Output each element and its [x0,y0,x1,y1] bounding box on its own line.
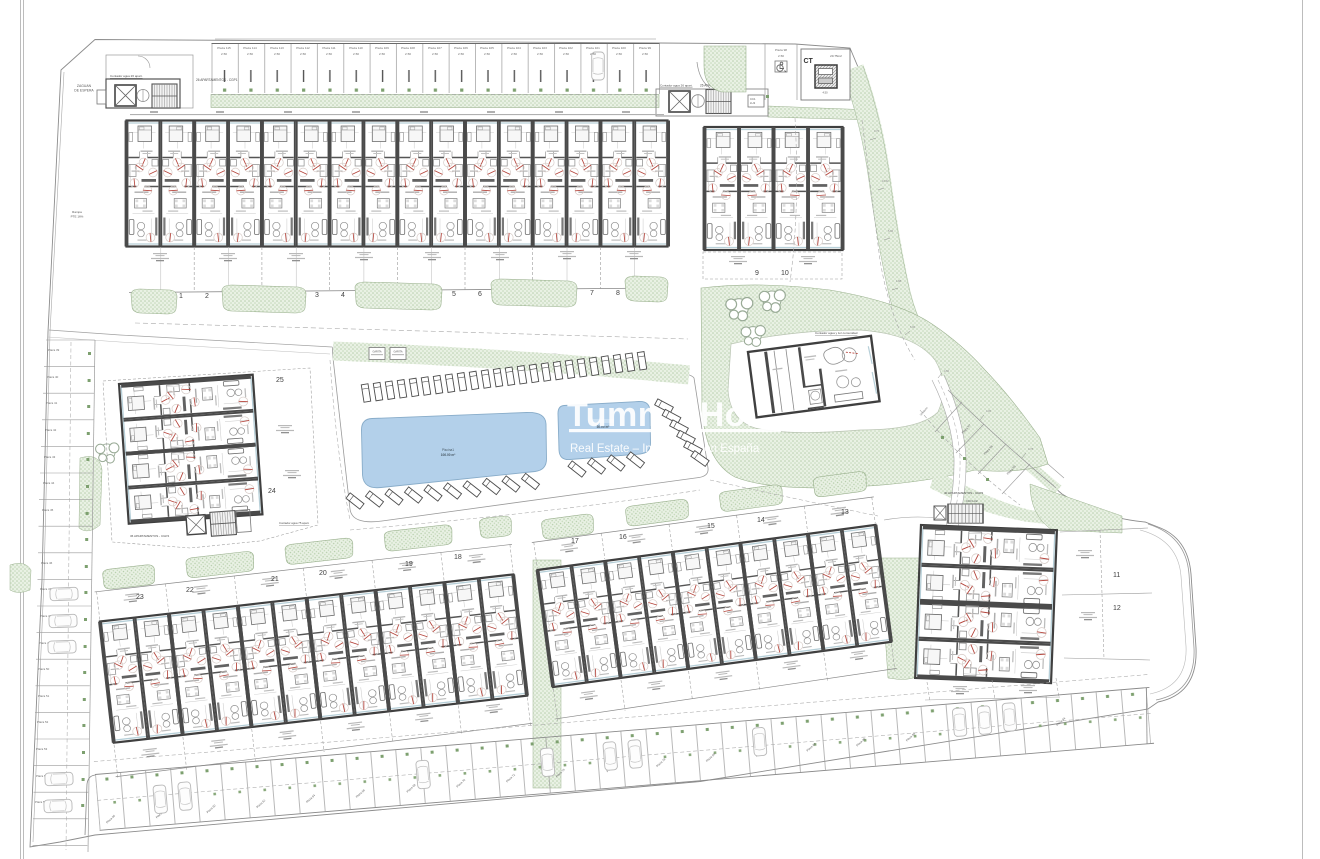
svg-text:7: 7 [590,290,594,297]
svg-text:2.50: 2.50 [221,52,227,56]
svg-text:Plaza 103: Plaza 103 [533,46,547,50]
svg-text:5.06: 5.06 [910,325,916,329]
svg-text:Plaza 109: Plaza 109 [375,46,389,50]
svg-text:4.50: 4.50 [944,369,950,373]
svg-text:2.50: 2.50 [458,52,464,56]
svg-text:Plaza 100: Plaza 100 [612,46,626,50]
svg-text:2.50: 2.50 [353,52,359,56]
svg-text:CT: CT [804,58,814,65]
svg-text:3.76: 3.76 [874,129,880,133]
svg-text:36 APARTAMENTOS - CGP4: 36 APARTAMENTOS - CGP4 [130,534,169,538]
svg-text:Plaza 104: Plaza 104 [507,46,521,50]
svg-text:2.50: 2.50 [642,52,648,56]
svg-text:2.50: 2.50 [432,52,438,56]
svg-text:26 APARTAMENTOS - CGP1: 26 APARTAMENTOS - CGP1 [196,78,238,82]
svg-text:Plaza 108: Plaza 108 [401,46,415,50]
svg-text:2.50: 2.50 [326,52,332,56]
svg-text:Rampa: Rampa [72,210,82,214]
svg-text:2.50: 2.50 [590,52,596,56]
svg-text:PTE 16%: PTE 16% [71,215,84,219]
svg-text:16: 16 [619,534,627,541]
svg-text:Contador agua y luz comunidad: Contador agua y luz comunidad [815,331,858,335]
svg-text:15: 15 [707,523,715,530]
svg-text:Piscina1: Piscina1 [442,448,454,452]
svg-text:12: 12 [1113,605,1121,612]
svg-text:CC3 LU2: CC3 LU2 [966,499,978,503]
svg-text:22: 22 [186,587,194,594]
svg-text:Plaza 50: Plaza 50 [38,667,50,671]
svg-text:9: 9 [755,270,759,277]
svg-text:Plaza 111: Plaza 111 [322,46,336,50]
svg-text:2.50: 2.50 [484,52,490,56]
svg-text:106.00 m²: 106.00 m² [441,453,456,457]
svg-text:Plaza 106: Plaza 106 [454,46,468,50]
svg-text:2.50: 2.50 [274,52,280,56]
svg-text:20.75m2: 20.75m2 [830,54,842,58]
svg-text:Contador agua 26 apart.: Contador agua 26 apart. [110,74,143,78]
svg-text:Plaza 98: Plaza 98 [775,48,787,52]
svg-text:11: 11 [1113,572,1120,579]
svg-text:2.50: 2.50 [247,52,253,56]
svg-text:25: 25 [276,377,284,384]
svg-text:Plaza 40: Plaza 40 [47,375,59,379]
svg-text:Plaza 46: Plaza 46 [41,561,53,565]
svg-text:6: 6 [478,291,482,298]
svg-text:GARITA: GARITA [393,351,402,354]
svg-text:Plaza 107: Plaza 107 [428,46,442,50]
svg-text:2: 2 [205,293,209,300]
svg-text:Plaza 112: Plaza 112 [296,46,310,50]
svg-text:16.52: 16.52 [882,179,889,183]
svg-text:DE ESPERA: DE ESPERA [74,89,94,93]
svg-text:4.50: 4.50 [822,91,828,95]
svg-text:23: 23 [136,594,144,601]
svg-text:2.50: 2.50 [616,52,622,56]
svg-text:1: 1 [179,293,183,300]
svg-text:2.50: 2.50 [405,52,411,56]
svg-text:5.96: 5.96 [888,229,894,233]
svg-text:2.50: 2.50 [778,54,784,58]
svg-text:Plaza 41: Plaza 41 [46,401,58,405]
svg-text:Plaza 110: Plaza 110 [349,46,363,50]
svg-text:24: 24 [268,488,276,495]
svg-text:Plaza 115: Plaza 115 [217,46,231,50]
svg-text:GARITA: GARITA [372,351,381,354]
svg-text:3: 3 [315,292,319,299]
svg-text:Plaza 51: Plaza 51 [38,694,50,698]
svg-text:20: 20 [319,570,327,577]
svg-text:Plaza 113: Plaza 113 [270,46,284,50]
svg-text:2.50: 2.50 [563,52,569,56]
svg-text:40 APARTAMENTOS - CGP3: 40 APARTAMENTOS - CGP3 [944,491,983,495]
svg-text:4: 4 [341,292,345,299]
svg-text:17: 17 [571,538,579,545]
svg-text:Plaza 102: Plaza 102 [559,46,573,50]
svg-text:Plaza 43: Plaza 43 [44,455,56,459]
svg-text:1.88: 1.88 [896,279,902,283]
svg-text:10: 10 [781,270,789,277]
svg-text:4.05: 4.05 [986,409,992,413]
svg-text:Plaza 101: Plaza 101 [586,46,600,50]
svg-text:18: 18 [454,554,462,561]
svg-text:Contador agua 26 apart.: Contador agua 26 apart. [660,84,693,88]
svg-text:Real Estate – Inmobiliaria en: Real Estate – Inmobiliaria en España [570,443,760,455]
svg-text:Plaza 99: Plaza 99 [639,46,651,50]
svg-text:Plaza 45: Plaza 45 [42,508,54,512]
svg-text:Plaza 39: Plaza 39 [48,348,60,352]
svg-text:5: 5 [452,291,456,298]
svg-text:13: 13 [841,509,849,516]
svg-text:Plaza 52: Plaza 52 [37,720,49,724]
svg-text:2.50: 2.50 [300,52,306,56]
svg-text:Plaza 42: Plaza 42 [45,428,57,432]
svg-text:4.78: 4.78 [1028,447,1034,451]
svg-text:2.50: 2.50 [511,52,517,56]
svg-text:2.50: 2.50 [537,52,543,56]
svg-text:Plaza 105: Plaza 105 [480,46,494,50]
svg-text:21: 21 [271,576,279,583]
svg-text:Contador agua 75 apart.: Contador agua 75 apart. [279,521,310,525]
svg-text:14: 14 [757,517,765,524]
svg-text:19: 19 [405,561,413,568]
svg-text:Plaza 53: Plaza 53 [36,747,48,751]
svg-text:ZAGUAN: ZAGUAN [77,84,92,88]
svg-text:Plaza 114: Plaza 114 [243,46,257,50]
svg-text:LU2: LU2 [750,101,756,105]
svg-text:2.50: 2.50 [379,52,385,56]
svg-text:8: 8 [616,290,620,297]
svg-text:Plaza 44: Plaza 44 [43,481,55,485]
